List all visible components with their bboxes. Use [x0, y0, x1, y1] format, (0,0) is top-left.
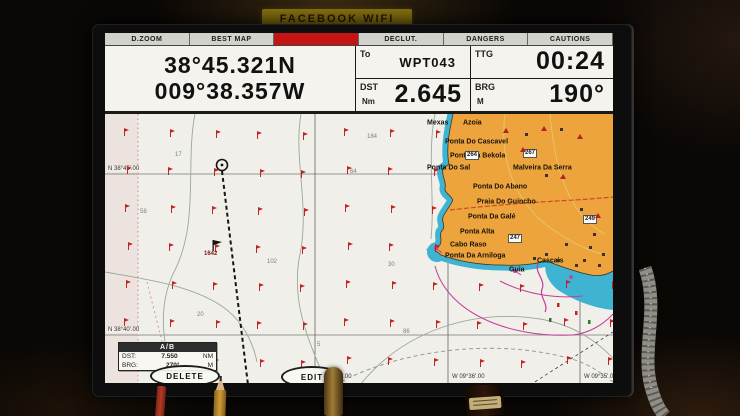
- bottle: [465, 384, 505, 416]
- bottle-label: [469, 396, 502, 410]
- brass-knob: [324, 367, 343, 416]
- yellow-pencil: [213, 376, 227, 416]
- photo-background: FACEBOOK WIFI D.ZOOM BEST MAP DECLUT. DA…: [0, 0, 740, 416]
- spiral-hose: [0, 0, 740, 416]
